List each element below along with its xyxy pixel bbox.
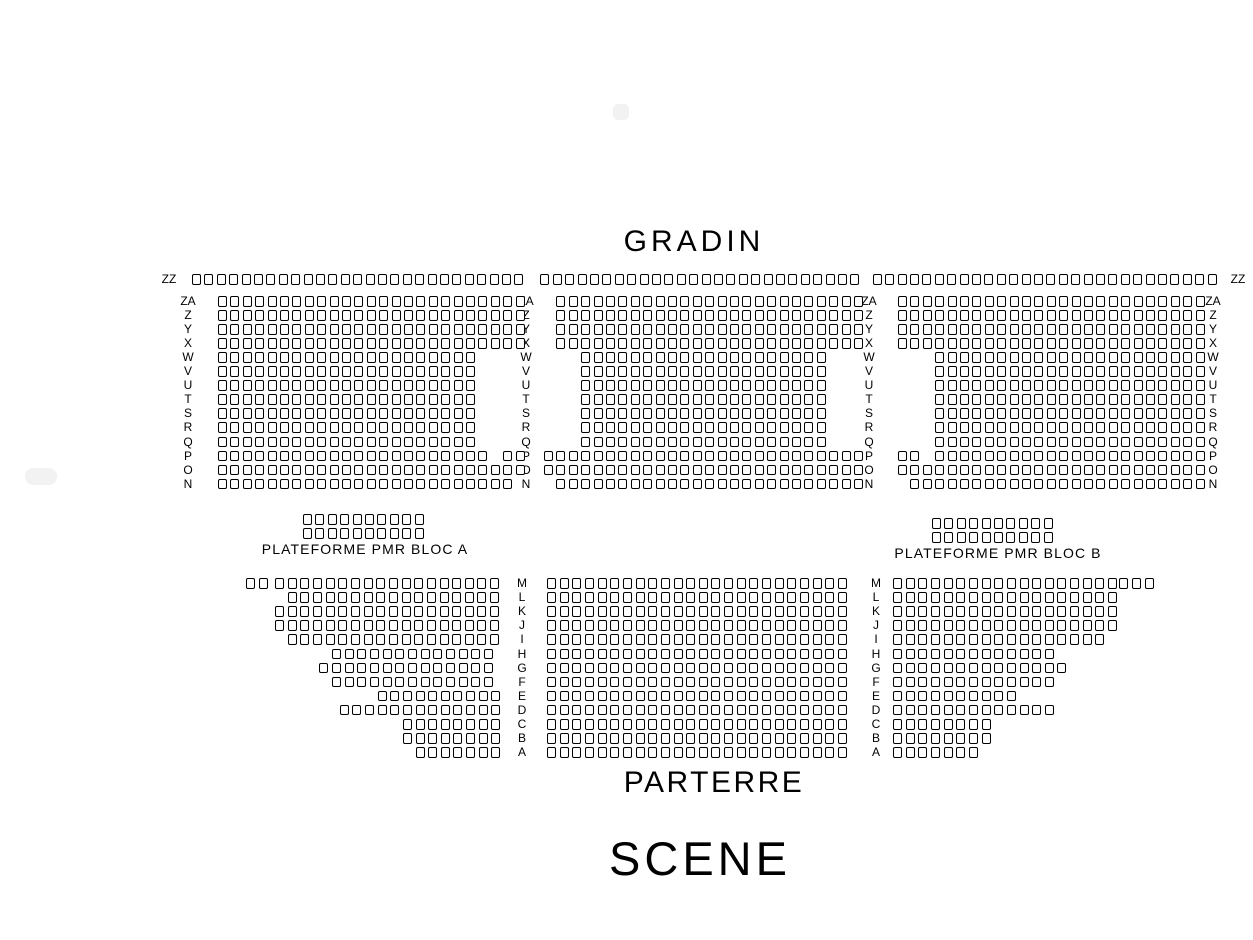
seat[interactable] <box>1119 578 1128 589</box>
seat[interactable] <box>918 663 927 674</box>
seat[interactable] <box>465 578 474 589</box>
seat[interactable] <box>825 620 834 631</box>
seat[interactable] <box>661 592 670 603</box>
seat[interactable] <box>572 733 581 744</box>
seat[interactable] <box>680 338 689 349</box>
seat[interactable] <box>969 578 978 589</box>
seat[interactable] <box>1059 324 1068 335</box>
seat[interactable] <box>693 479 702 490</box>
seat[interactable] <box>243 465 252 476</box>
seat[interactable] <box>1034 274 1043 285</box>
seat[interactable] <box>279 274 288 285</box>
seat[interactable] <box>792 296 801 307</box>
seat[interactable] <box>944 578 953 589</box>
seat[interactable] <box>705 324 714 335</box>
seat[interactable] <box>1034 352 1043 363</box>
seat[interactable] <box>1047 338 1056 349</box>
seat[interactable] <box>787 620 796 631</box>
seat[interactable] <box>693 366 702 377</box>
seat[interactable] <box>623 578 632 589</box>
seat[interactable] <box>935 366 944 377</box>
seat[interactable] <box>804 422 813 433</box>
seat[interactable] <box>594 366 603 377</box>
seat[interactable] <box>243 310 252 321</box>
seat[interactable] <box>1134 310 1143 321</box>
seat[interactable] <box>1171 324 1180 335</box>
seat[interactable] <box>390 514 399 525</box>
seat[interactable] <box>454 338 463 349</box>
seat[interactable] <box>775 649 784 660</box>
seat[interactable] <box>906 663 915 674</box>
seat[interactable] <box>459 649 468 660</box>
seat[interactable] <box>982 733 991 744</box>
seat[interactable] <box>1006 532 1015 543</box>
seat[interactable] <box>230 479 239 490</box>
seat[interactable] <box>1132 578 1141 589</box>
seat[interactable] <box>742 380 751 391</box>
seat[interactable] <box>718 380 727 391</box>
seat[interactable] <box>560 733 569 744</box>
seat[interactable] <box>780 366 789 377</box>
seat[interactable] <box>1146 274 1155 285</box>
seat[interactable] <box>313 634 322 645</box>
seat[interactable] <box>317 338 326 349</box>
seat[interactable] <box>680 366 689 377</box>
seat[interactable] <box>452 606 461 617</box>
seat[interactable] <box>357 663 366 674</box>
seat[interactable] <box>618 366 627 377</box>
seat[interactable] <box>792 352 801 363</box>
seat[interactable] <box>328 528 337 539</box>
seat[interactable] <box>1010 296 1019 307</box>
seat[interactable] <box>490 592 499 603</box>
seat[interactable] <box>392 408 401 419</box>
seat[interactable] <box>817 437 826 448</box>
seat[interactable] <box>342 296 351 307</box>
seat[interactable] <box>842 338 851 349</box>
seat[interactable] <box>838 620 847 631</box>
seat[interactable] <box>1183 422 1192 433</box>
seat[interactable] <box>787 634 796 645</box>
seat[interactable] <box>441 691 450 702</box>
seat[interactable] <box>379 422 388 433</box>
seat[interactable] <box>606 366 615 377</box>
seat[interactable] <box>1109 451 1118 462</box>
seat[interactable] <box>997 352 1006 363</box>
seat[interactable] <box>800 747 809 758</box>
seat[interactable] <box>618 338 627 349</box>
seat[interactable] <box>280 408 289 419</box>
seat[interactable] <box>581 296 590 307</box>
seat[interactable] <box>292 394 301 405</box>
seat[interactable] <box>594 451 603 462</box>
seat[interactable] <box>668 310 677 321</box>
seat[interactable] <box>842 296 851 307</box>
seat[interactable] <box>594 310 603 321</box>
seat[interactable] <box>429 408 438 419</box>
seat[interactable] <box>569 465 578 476</box>
seat[interactable] <box>813 649 822 660</box>
seat[interactable] <box>648 691 657 702</box>
seat[interactable] <box>484 649 493 660</box>
seat[interactable] <box>982 691 991 702</box>
seat[interactable] <box>288 634 297 645</box>
seat[interactable] <box>1171 422 1180 433</box>
seat[interactable] <box>1020 705 1029 716</box>
seat[interactable] <box>792 394 801 405</box>
seat[interactable] <box>572 620 581 631</box>
seat[interactable] <box>598 578 607 589</box>
seat[interactable] <box>471 677 480 688</box>
seat[interactable] <box>1071 274 1080 285</box>
seat[interactable] <box>606 465 615 476</box>
seat[interactable] <box>218 394 227 405</box>
seat[interactable] <box>340 528 349 539</box>
seat[interactable] <box>560 592 569 603</box>
seat[interactable] <box>1084 324 1093 335</box>
seat[interactable] <box>1047 394 1056 405</box>
seat[interactable] <box>960 274 969 285</box>
seat[interactable] <box>643 394 652 405</box>
seat[interactable] <box>560 705 569 716</box>
seat[interactable] <box>1083 578 1092 589</box>
seat[interactable] <box>825 634 834 645</box>
seat[interactable] <box>898 338 907 349</box>
seat[interactable] <box>948 451 957 462</box>
seat[interactable] <box>1096 310 1105 321</box>
seat[interactable] <box>1072 394 1081 405</box>
seat[interactable] <box>1020 592 1029 603</box>
seat[interactable] <box>342 422 351 433</box>
seat[interactable] <box>792 338 801 349</box>
seat[interactable] <box>581 380 590 391</box>
seat[interactable] <box>944 719 953 730</box>
seat[interactable] <box>838 719 847 730</box>
seat[interactable] <box>416 451 425 462</box>
seat[interactable] <box>452 274 461 285</box>
seat[interactable] <box>787 663 796 674</box>
seat[interactable] <box>1072 437 1081 448</box>
seat[interactable] <box>730 324 739 335</box>
seat[interactable] <box>893 620 902 631</box>
seat[interactable] <box>1007 677 1016 688</box>
seat[interactable] <box>643 465 652 476</box>
seat[interactable] <box>956 578 965 589</box>
seat[interactable] <box>674 691 683 702</box>
seat[interactable] <box>292 465 301 476</box>
seat[interactable] <box>838 634 847 645</box>
seat[interactable] <box>416 380 425 391</box>
seat[interactable] <box>598 620 607 631</box>
seat[interactable] <box>1007 578 1016 589</box>
seat[interactable] <box>767 338 776 349</box>
seat[interactable] <box>610 747 619 758</box>
seat[interactable] <box>560 691 569 702</box>
seat[interactable] <box>755 310 764 321</box>
seat[interactable] <box>636 649 645 660</box>
seat[interactable] <box>661 719 670 730</box>
seat[interactable] <box>792 408 801 419</box>
seat[interactable] <box>326 592 335 603</box>
seat[interactable] <box>730 366 739 377</box>
seat[interactable] <box>477 606 486 617</box>
seat[interactable] <box>636 733 645 744</box>
seat[interactable] <box>540 274 549 285</box>
seat[interactable] <box>749 733 758 744</box>
seat[interactable] <box>280 451 289 462</box>
seat[interactable] <box>960 366 969 377</box>
seat[interactable] <box>906 578 915 589</box>
seat[interactable] <box>1170 274 1179 285</box>
seat[interactable] <box>636 719 645 730</box>
seat[interactable] <box>994 663 1003 674</box>
seat[interactable] <box>1084 366 1093 377</box>
seat[interactable] <box>317 451 326 462</box>
seat[interactable] <box>243 408 252 419</box>
seat[interactable] <box>737 705 746 716</box>
seat[interactable] <box>484 677 493 688</box>
seat[interactable] <box>465 274 474 285</box>
seat[interactable] <box>288 592 297 603</box>
seat[interactable] <box>742 352 751 363</box>
seat[interactable] <box>1171 437 1180 448</box>
seat[interactable] <box>354 352 363 363</box>
seat[interactable] <box>1096 352 1105 363</box>
seat[interactable] <box>969 733 978 744</box>
seat[interactable] <box>705 408 714 419</box>
seat[interactable] <box>379 437 388 448</box>
seat[interactable] <box>825 719 834 730</box>
seat[interactable] <box>1059 479 1068 490</box>
seat[interactable] <box>594 296 603 307</box>
seat[interactable] <box>944 634 953 645</box>
seat[interactable] <box>711 705 720 716</box>
seat[interactable] <box>711 578 720 589</box>
seat[interactable] <box>427 606 436 617</box>
seat[interactable] <box>762 649 771 660</box>
seat[interactable] <box>918 691 927 702</box>
seat[interactable] <box>982 634 991 645</box>
seat[interactable] <box>345 649 354 660</box>
seat[interactable] <box>804 465 813 476</box>
seat[interactable] <box>1158 422 1167 433</box>
seat[interactable] <box>268 310 277 321</box>
seat[interactable] <box>585 691 594 702</box>
seat[interactable] <box>668 479 677 490</box>
seat[interactable] <box>581 465 590 476</box>
seat[interactable] <box>313 606 322 617</box>
seat[interactable] <box>1072 324 1081 335</box>
seat[interactable] <box>1072 408 1081 419</box>
seat[interactable] <box>598 663 607 674</box>
seat[interactable] <box>817 324 826 335</box>
seat[interactable] <box>1072 352 1081 363</box>
seat[interactable] <box>454 479 463 490</box>
seat[interactable] <box>598 649 607 660</box>
seat[interactable] <box>606 408 615 419</box>
seat[interactable] <box>648 578 657 589</box>
seat[interactable] <box>755 394 764 405</box>
seat[interactable] <box>1084 380 1093 391</box>
seat[interactable] <box>610 677 619 688</box>
seat[interactable] <box>581 437 590 448</box>
seat[interactable] <box>804 324 813 335</box>
seat[interactable] <box>491 465 500 476</box>
seat[interactable] <box>581 408 590 419</box>
seat[interactable] <box>829 324 838 335</box>
seat[interactable] <box>1171 366 1180 377</box>
seat[interactable] <box>403 705 412 716</box>
seat[interactable] <box>354 465 363 476</box>
seat[interactable] <box>1208 274 1217 285</box>
seat[interactable] <box>705 394 714 405</box>
seat[interactable] <box>956 747 965 758</box>
seat[interactable] <box>623 663 632 674</box>
seat[interactable] <box>1047 324 1056 335</box>
seat[interactable] <box>780 394 789 405</box>
seat[interactable] <box>1047 352 1056 363</box>
seat[interactable] <box>1146 465 1155 476</box>
seat[interactable] <box>466 479 475 490</box>
seat[interactable] <box>775 592 784 603</box>
seat[interactable] <box>326 606 335 617</box>
seat[interactable] <box>479 691 488 702</box>
seat[interactable] <box>1196 296 1205 307</box>
seat[interactable] <box>402 578 411 589</box>
seat[interactable] <box>1047 451 1056 462</box>
seat[interactable] <box>1109 422 1118 433</box>
seat[interactable] <box>453 705 462 716</box>
seat[interactable] <box>944 705 953 716</box>
seat[interactable] <box>1121 437 1130 448</box>
seat[interactable] <box>893 649 902 660</box>
seat[interactable] <box>829 296 838 307</box>
seat[interactable] <box>1034 394 1043 405</box>
seat[interactable] <box>972 274 981 285</box>
seat[interactable] <box>767 479 776 490</box>
seat[interactable] <box>817 380 826 391</box>
seat[interactable] <box>514 274 523 285</box>
seat[interactable] <box>330 338 339 349</box>
seat[interactable] <box>918 634 927 645</box>
seat[interactable] <box>969 719 978 730</box>
seat[interactable] <box>1022 274 1031 285</box>
seat[interactable] <box>300 634 309 645</box>
seat[interactable] <box>636 606 645 617</box>
seat[interactable] <box>643 408 652 419</box>
seat[interactable] <box>935 451 944 462</box>
seat[interactable] <box>985 422 994 433</box>
seat[interactable] <box>618 465 627 476</box>
seat[interactable] <box>997 394 1006 405</box>
seat[interactable] <box>792 324 801 335</box>
seat[interactable] <box>569 310 578 321</box>
seat[interactable] <box>1007 634 1016 645</box>
seat[interactable] <box>598 719 607 730</box>
seat[interactable] <box>367 437 376 448</box>
seat[interactable] <box>935 324 944 335</box>
seat[interactable] <box>1084 437 1093 448</box>
seat[interactable] <box>1007 705 1016 716</box>
seat[interactable] <box>1096 296 1105 307</box>
seat[interactable] <box>280 310 289 321</box>
seat[interactable] <box>428 747 437 758</box>
seat[interactable] <box>404 366 413 377</box>
seat[interactable] <box>1010 451 1019 462</box>
seat[interactable] <box>656 408 665 419</box>
seat[interactable] <box>829 479 838 490</box>
seat[interactable] <box>404 310 413 321</box>
seat[interactable] <box>686 719 695 730</box>
seat[interactable] <box>415 514 424 525</box>
seat[interactable] <box>345 663 354 674</box>
seat[interactable] <box>780 310 789 321</box>
seat[interactable] <box>1158 296 1167 307</box>
seat[interactable] <box>780 380 789 391</box>
seat[interactable] <box>547 691 556 702</box>
seat[interactable] <box>1134 422 1143 433</box>
seat[interactable] <box>342 338 351 349</box>
seat[interactable] <box>280 296 289 307</box>
seat[interactable] <box>1034 366 1043 377</box>
seat[interactable] <box>1196 366 1205 377</box>
seat[interactable] <box>268 451 277 462</box>
seat[interactable] <box>503 296 512 307</box>
seat[interactable] <box>1009 274 1018 285</box>
seat[interactable] <box>317 479 326 490</box>
seat[interactable] <box>623 733 632 744</box>
seat[interactable] <box>838 649 847 660</box>
seat[interactable] <box>686 677 695 688</box>
seat[interactable] <box>1146 408 1155 419</box>
seat[interactable] <box>755 338 764 349</box>
seat[interactable] <box>255 338 264 349</box>
seat[interactable] <box>338 578 347 589</box>
seat[interactable] <box>643 310 652 321</box>
seat[interactable] <box>1045 606 1054 617</box>
seat[interactable] <box>780 408 789 419</box>
seat[interactable] <box>948 380 957 391</box>
seat[interactable] <box>680 394 689 405</box>
seat[interactable] <box>606 296 615 307</box>
seat[interactable] <box>416 394 425 405</box>
seat[interactable] <box>230 338 239 349</box>
seat[interactable] <box>1158 366 1167 377</box>
seat[interactable] <box>755 324 764 335</box>
seat[interactable] <box>661 620 670 631</box>
seat[interactable] <box>477 578 486 589</box>
seat[interactable] <box>305 437 314 448</box>
seat[interactable] <box>792 366 801 377</box>
seat[interactable] <box>674 719 683 730</box>
seat[interactable] <box>1072 310 1081 321</box>
seat[interactable] <box>598 634 607 645</box>
seat[interactable] <box>1070 578 1079 589</box>
seat[interactable] <box>441 296 450 307</box>
seat[interactable] <box>918 747 927 758</box>
seat[interactable] <box>972 465 981 476</box>
seat[interactable] <box>931 620 940 631</box>
seat[interactable] <box>218 366 227 377</box>
seat[interactable] <box>560 634 569 645</box>
seat[interactable] <box>804 479 813 490</box>
seat[interactable] <box>804 451 813 462</box>
seat[interactable] <box>305 352 314 363</box>
seat[interactable] <box>661 649 670 660</box>
seat[interactable] <box>367 422 376 433</box>
seat[interactable] <box>192 274 201 285</box>
seat[interactable] <box>1158 437 1167 448</box>
